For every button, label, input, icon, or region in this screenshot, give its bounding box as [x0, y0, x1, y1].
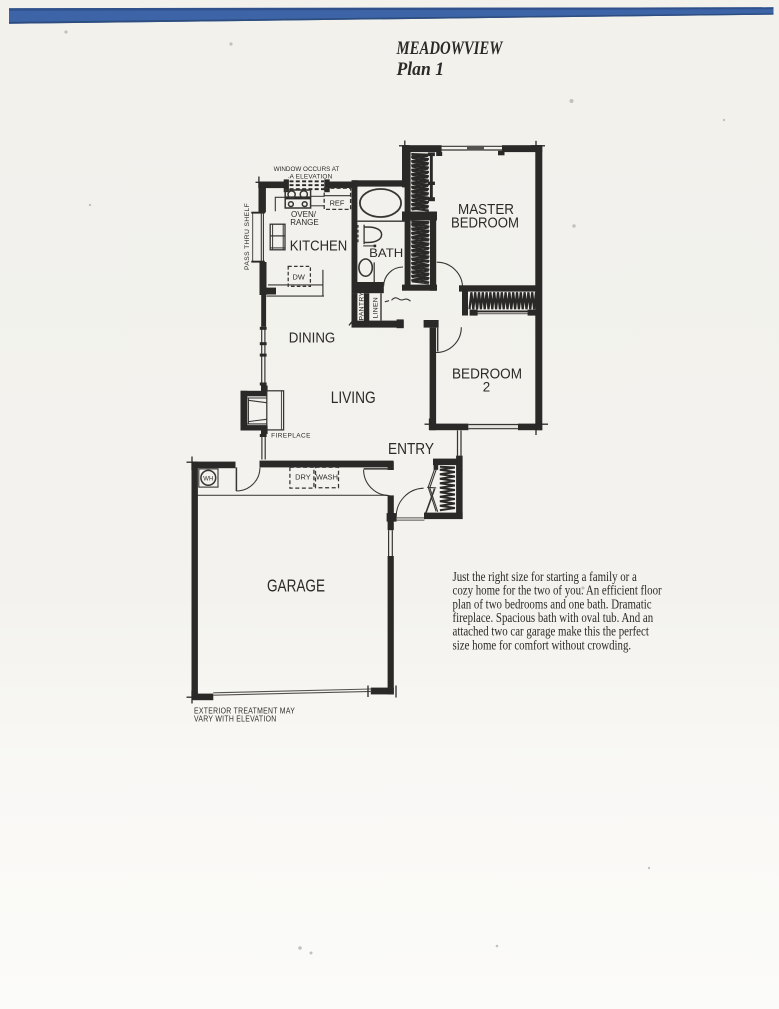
svg-text:size home for comfort without: size home for comfort without crowding.	[453, 637, 632, 652]
svg-text:..: ..	[288, 174, 292, 180]
svg-text:BEDROOM: BEDROOM	[451, 215, 519, 232]
svg-text:RANGE: RANGE	[290, 218, 318, 227]
svg-text:DW: DW	[293, 273, 305, 282]
svg-text:DRY: DRY	[295, 472, 311, 481]
svg-text:PASS THRU SHELF: PASS THRU SHELF	[244, 203, 251, 270]
svg-text:ENTRY: ENTRY	[388, 441, 435, 458]
svg-text:DINING: DINING	[289, 330, 336, 347]
svg-text:LIVING: LIVING	[331, 388, 376, 407]
svg-text:REF: REF	[330, 198, 345, 207]
svg-text:2: 2	[483, 380, 490, 395]
svg-text:WH: WH	[203, 476, 213, 482]
svg-text:WINDOW OCCURS AT: WINDOW OCCURS AT	[274, 166, 340, 173]
svg-text:MEADOWVIEW: MEADOWVIEW	[396, 37, 504, 58]
svg-text:FIREPLACE: FIREPLACE	[271, 433, 311, 440]
svg-text:WASH: WASH	[316, 473, 338, 482]
svg-text:Plan 1: Plan 1	[396, 58, 444, 80]
svg-text:A ELEVATION: A ELEVATION	[290, 173, 333, 180]
svg-text:BATH: BATH	[369, 247, 403, 260]
svg-text:PANTRY: PANTRY	[358, 292, 365, 321]
svg-text:KITCHEN: KITCHEN	[290, 238, 348, 254]
svg-text:VARY WITH ELEVATION: VARY WITH ELEVATION	[194, 714, 277, 724]
svg-text:GARAGE: GARAGE	[267, 576, 325, 596]
svg-text:LINEN: LINEN	[372, 297, 379, 319]
